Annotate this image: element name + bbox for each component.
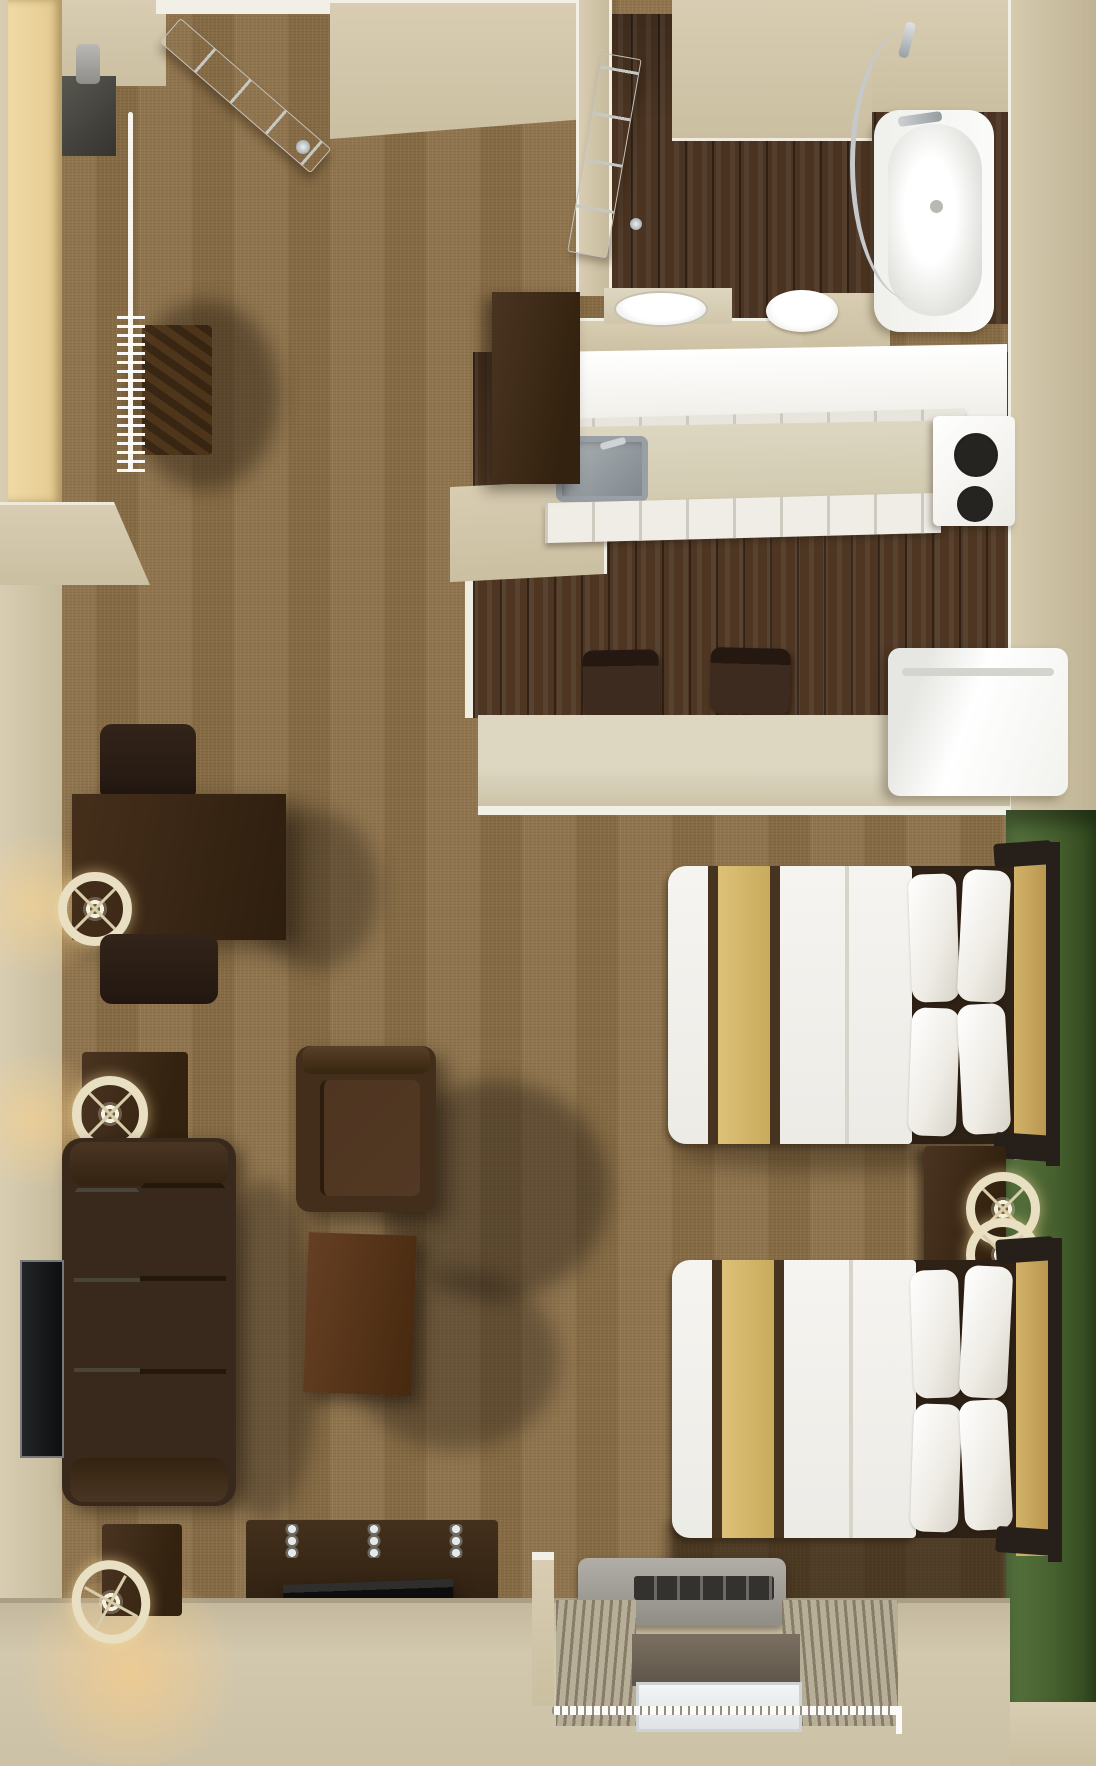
console-knobs-center [360,1524,388,1558]
kitchen-floor-baseboard [465,575,473,718]
window-wall-stub [532,1552,554,1706]
bottom-right-wall [1006,1702,1096,1766]
side-table [303,1232,417,1396]
sofa-arm-bottom [70,1458,228,1502]
toilet [766,290,838,332]
closet-hangers [117,312,145,472]
bar-stool-1 [582,649,659,718]
closet-safe-box [62,76,116,156]
bed-1-pillow [908,873,960,1003]
stove-burner-small [957,486,993,522]
bed-1-headboard [1014,848,1048,1160]
bed-1-pillow [957,1003,1012,1135]
console-knobs-left [278,1524,306,1558]
bar-stool-2 [709,647,791,715]
vanity-sink [614,291,708,327]
bed-1-trim-stripe-b [770,866,780,1144]
bar-counter-edge [478,806,1010,815]
bed-1-duvet [668,866,912,1144]
bed-2-pillow [959,1265,1014,1399]
armchair-back [302,1046,430,1074]
closet-floor-strip [8,0,62,502]
ac-vent-grille [634,1576,774,1600]
desk-chair-1 [100,724,196,802]
bed-2-headboard [1016,1244,1050,1556]
bed-2-frame-corner-bottom [995,1526,1059,1556]
bed-2-fold-line [849,1260,853,1538]
bed-2-pillow [910,1269,962,1399]
entry-door-knob [296,140,310,154]
refrigerator-handle [902,668,1054,676]
bed-2-duvet [672,1260,916,1538]
sofa-seat-cushions [74,1186,140,1458]
bed-2-headboard-frame [1048,1238,1062,1562]
top-wall-right-of-door [330,0,580,139]
bed-2-trim-stripe-a [712,1260,722,1538]
entry-cabinet [492,292,580,484]
stove-burner-large [954,433,998,477]
desk-chair-2 [100,934,218,1004]
bed-1-pillow [957,869,1012,1003]
console-knobs-right [442,1524,470,1558]
wall-tv [20,1260,64,1458]
bed-1-trim-stripe-a [708,866,718,1144]
bed-2-trim-stripe-b [774,1260,784,1538]
bed-2-frame-corner-top [995,1236,1055,1264]
bed-1-fold-line [845,866,849,1144]
curtain-rod [552,1706,902,1715]
bed-1-pillow [908,1007,960,1137]
bed-2-runner [722,1260,774,1538]
luggage-rack [142,325,212,455]
entry-threshold [156,0,334,14]
bed-1-headboard-frame [1046,842,1060,1166]
curtain-rod-bracket [896,1706,902,1734]
bathroom-top-wall [672,0,872,141]
sofa-arm-top [70,1142,228,1186]
window-sill [632,1634,800,1686]
bathtub-drain [930,200,943,213]
floor-plan [0,0,1096,1766]
bed-1-frame-corner-top [993,840,1053,868]
bathroom-door-knob [630,218,642,230]
bed-2-pillow [910,1403,962,1533]
closet-bracket [76,44,100,84]
bed-1-runner [718,866,770,1144]
sofa-back-cushions [140,1182,226,1462]
bed-2-pillow [959,1399,1014,1531]
armchair-cushion [320,1080,420,1196]
